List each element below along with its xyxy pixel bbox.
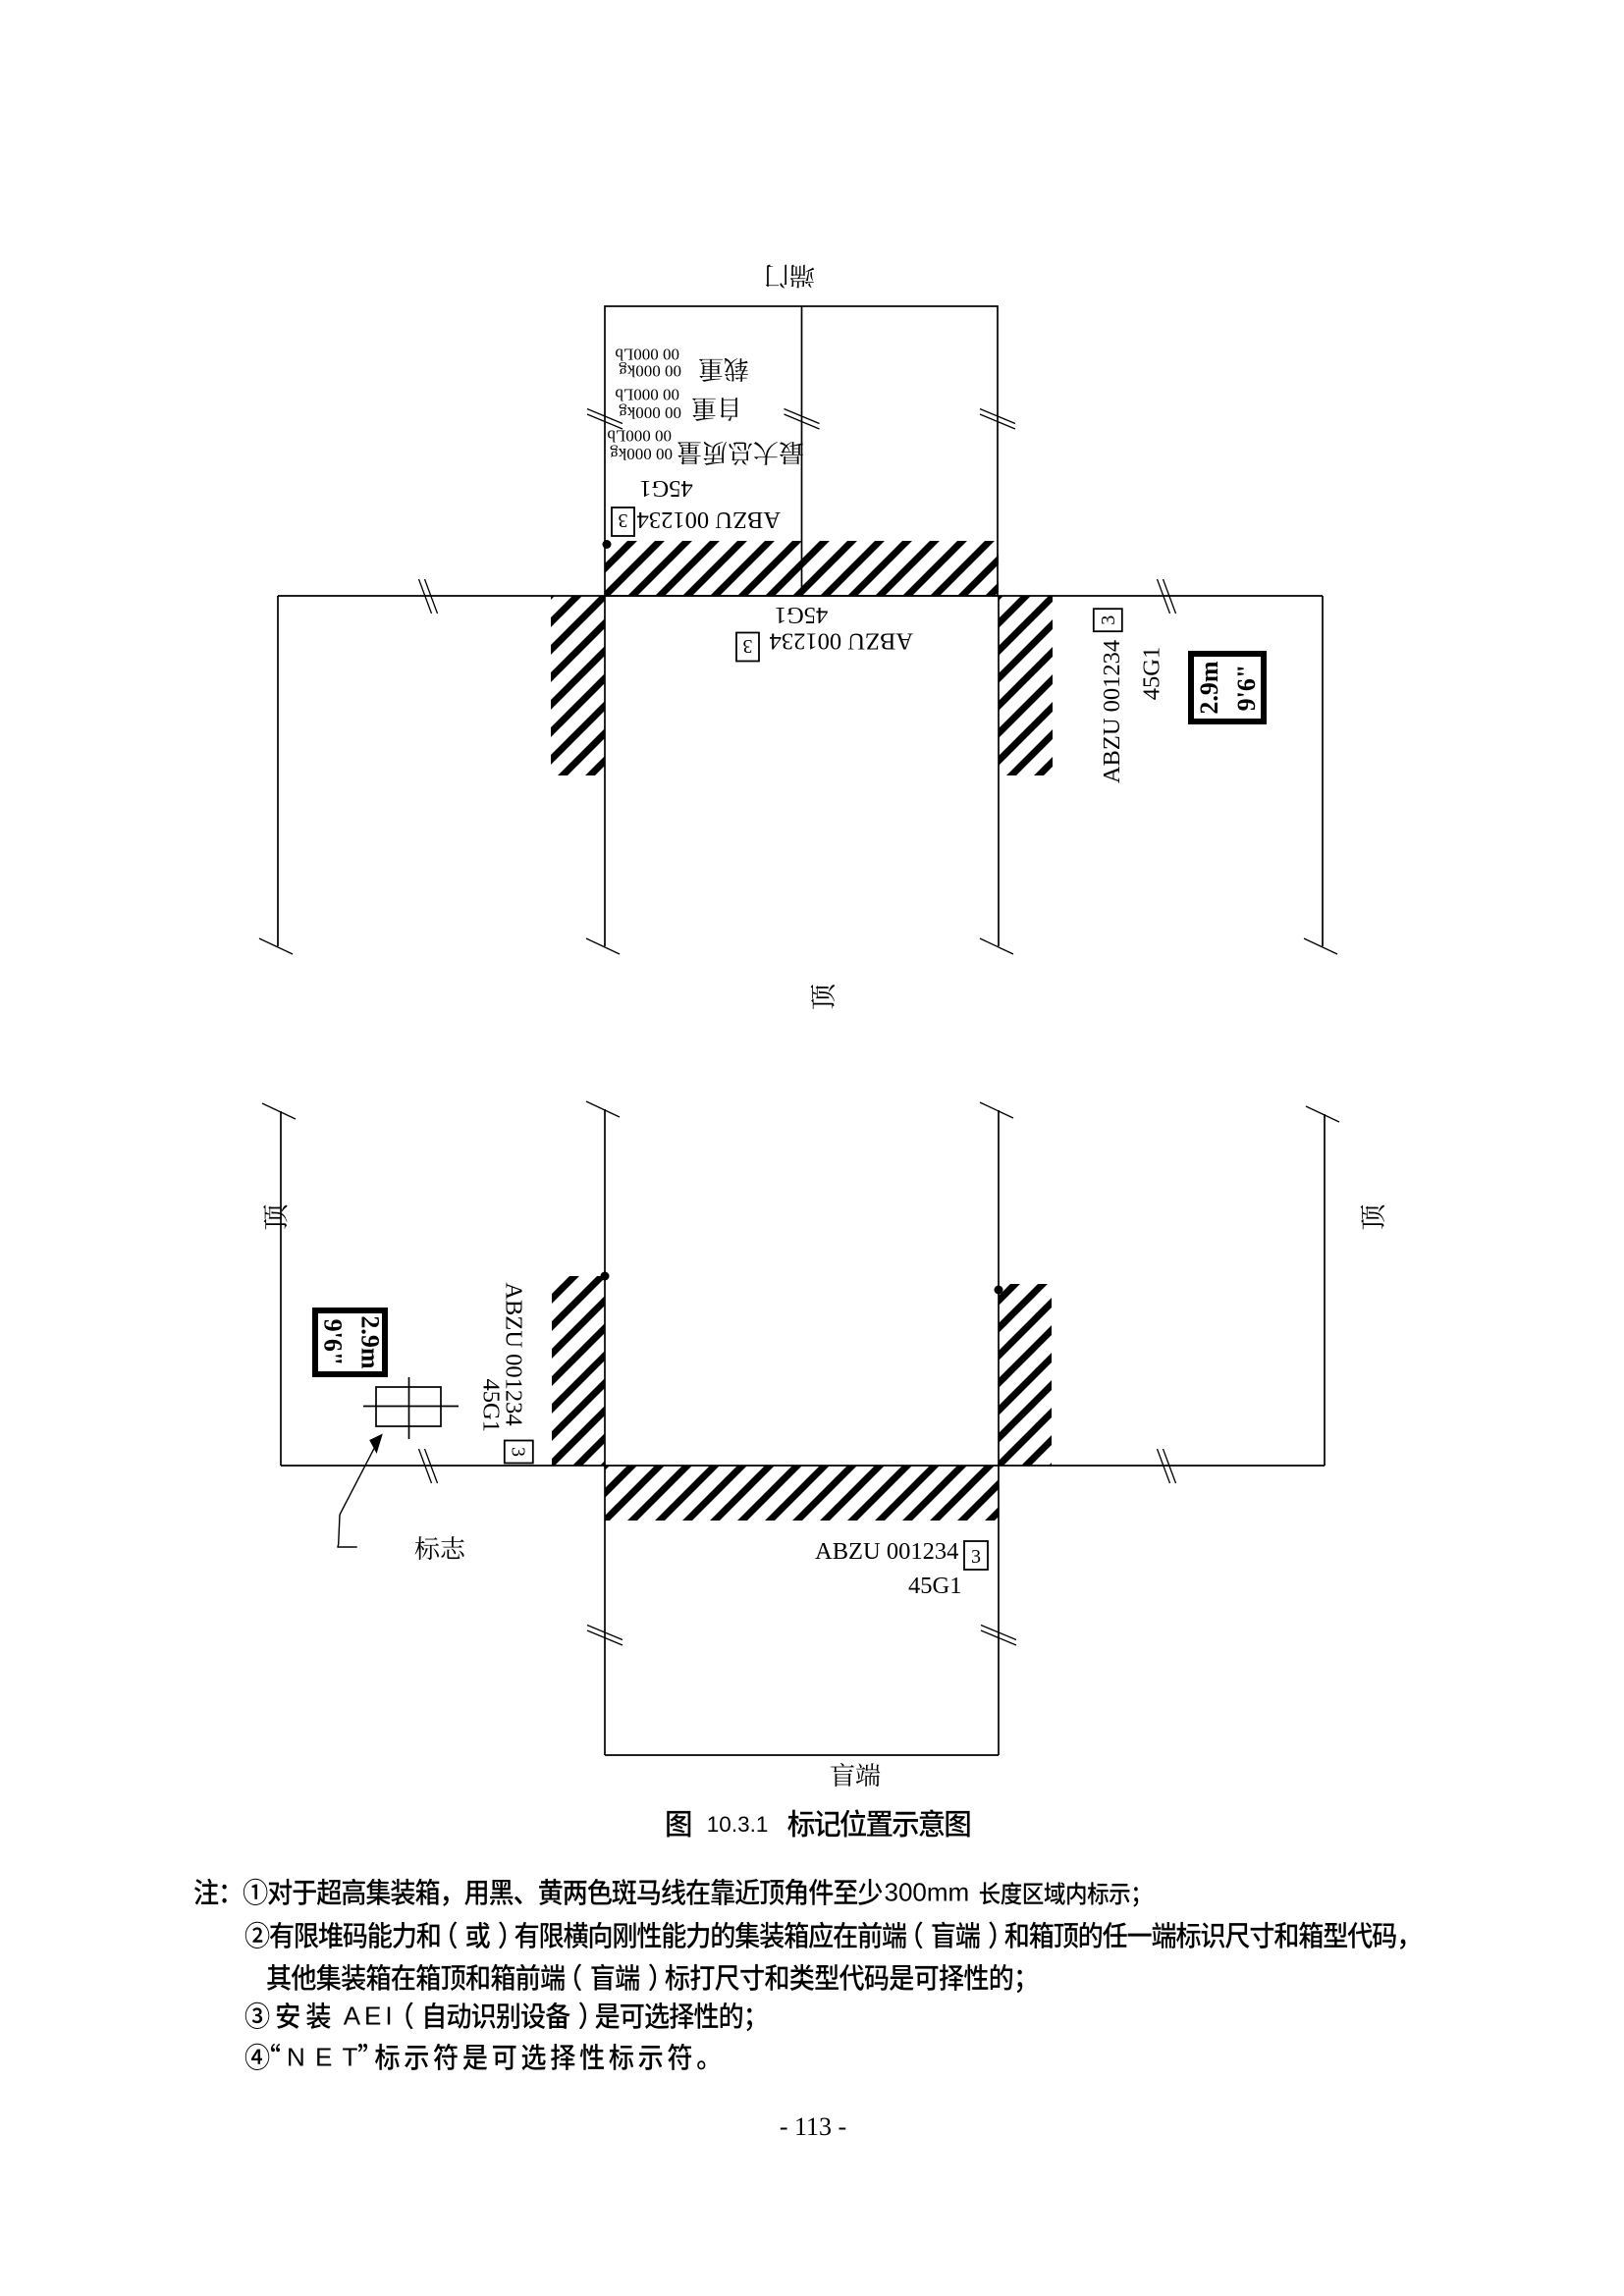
svg-text:2.9m: 2.9m [356,1315,385,1369]
svg-text:00 000Lb: 00 000Lb [615,386,679,404]
svg-text:10.3.1: 10.3.1 [707,1812,769,1837]
svg-text:3: 3 [743,635,753,657]
svg-text:ABZU 001234: ABZU 001234 [1099,640,1125,783]
svg-text:45G1: 45G1 [639,475,692,502]
svg-text:00 000Lb: 00 000Lb [615,346,679,364]
svg-text:3: 3 [507,1447,528,1457]
svg-text:00 000kg: 00 000kg [610,445,673,463]
svg-text:3: 3 [1098,615,1119,625]
svg-text:- 113 -: - 113 - [780,2112,846,2141]
svg-text:45G1: 45G1 [1139,647,1165,700]
svg-text:45G1: 45G1 [908,1573,961,1599]
svg-text:NET: NET [287,2042,368,2071]
svg-text:9'6": 9'6" [319,1319,348,1366]
svg-text:9'6": 9'6" [1232,665,1261,712]
svg-text:00 000Lb: 00 000Lb [607,427,672,446]
svg-text:2.9m: 2.9m [1195,661,1223,715]
svg-text:45G1: 45G1 [477,1379,504,1432]
svg-text:3: 3 [619,509,628,531]
svg-text:3: 3 [971,1546,981,1568]
svg-text:AEI: AEI [344,2001,397,2030]
svg-text:45G1: 45G1 [775,602,828,628]
svg-text:ABZU 001234: ABZU 001234 [815,1538,958,1565]
svg-text:00 000kg: 00 000kg [619,403,681,422]
svg-text:300mm: 300mm [885,1877,970,1906]
svg-text:ABZU 001234: ABZU 001234 [770,627,913,654]
svg-text:ABZU 001234: ABZU 001234 [637,507,781,533]
